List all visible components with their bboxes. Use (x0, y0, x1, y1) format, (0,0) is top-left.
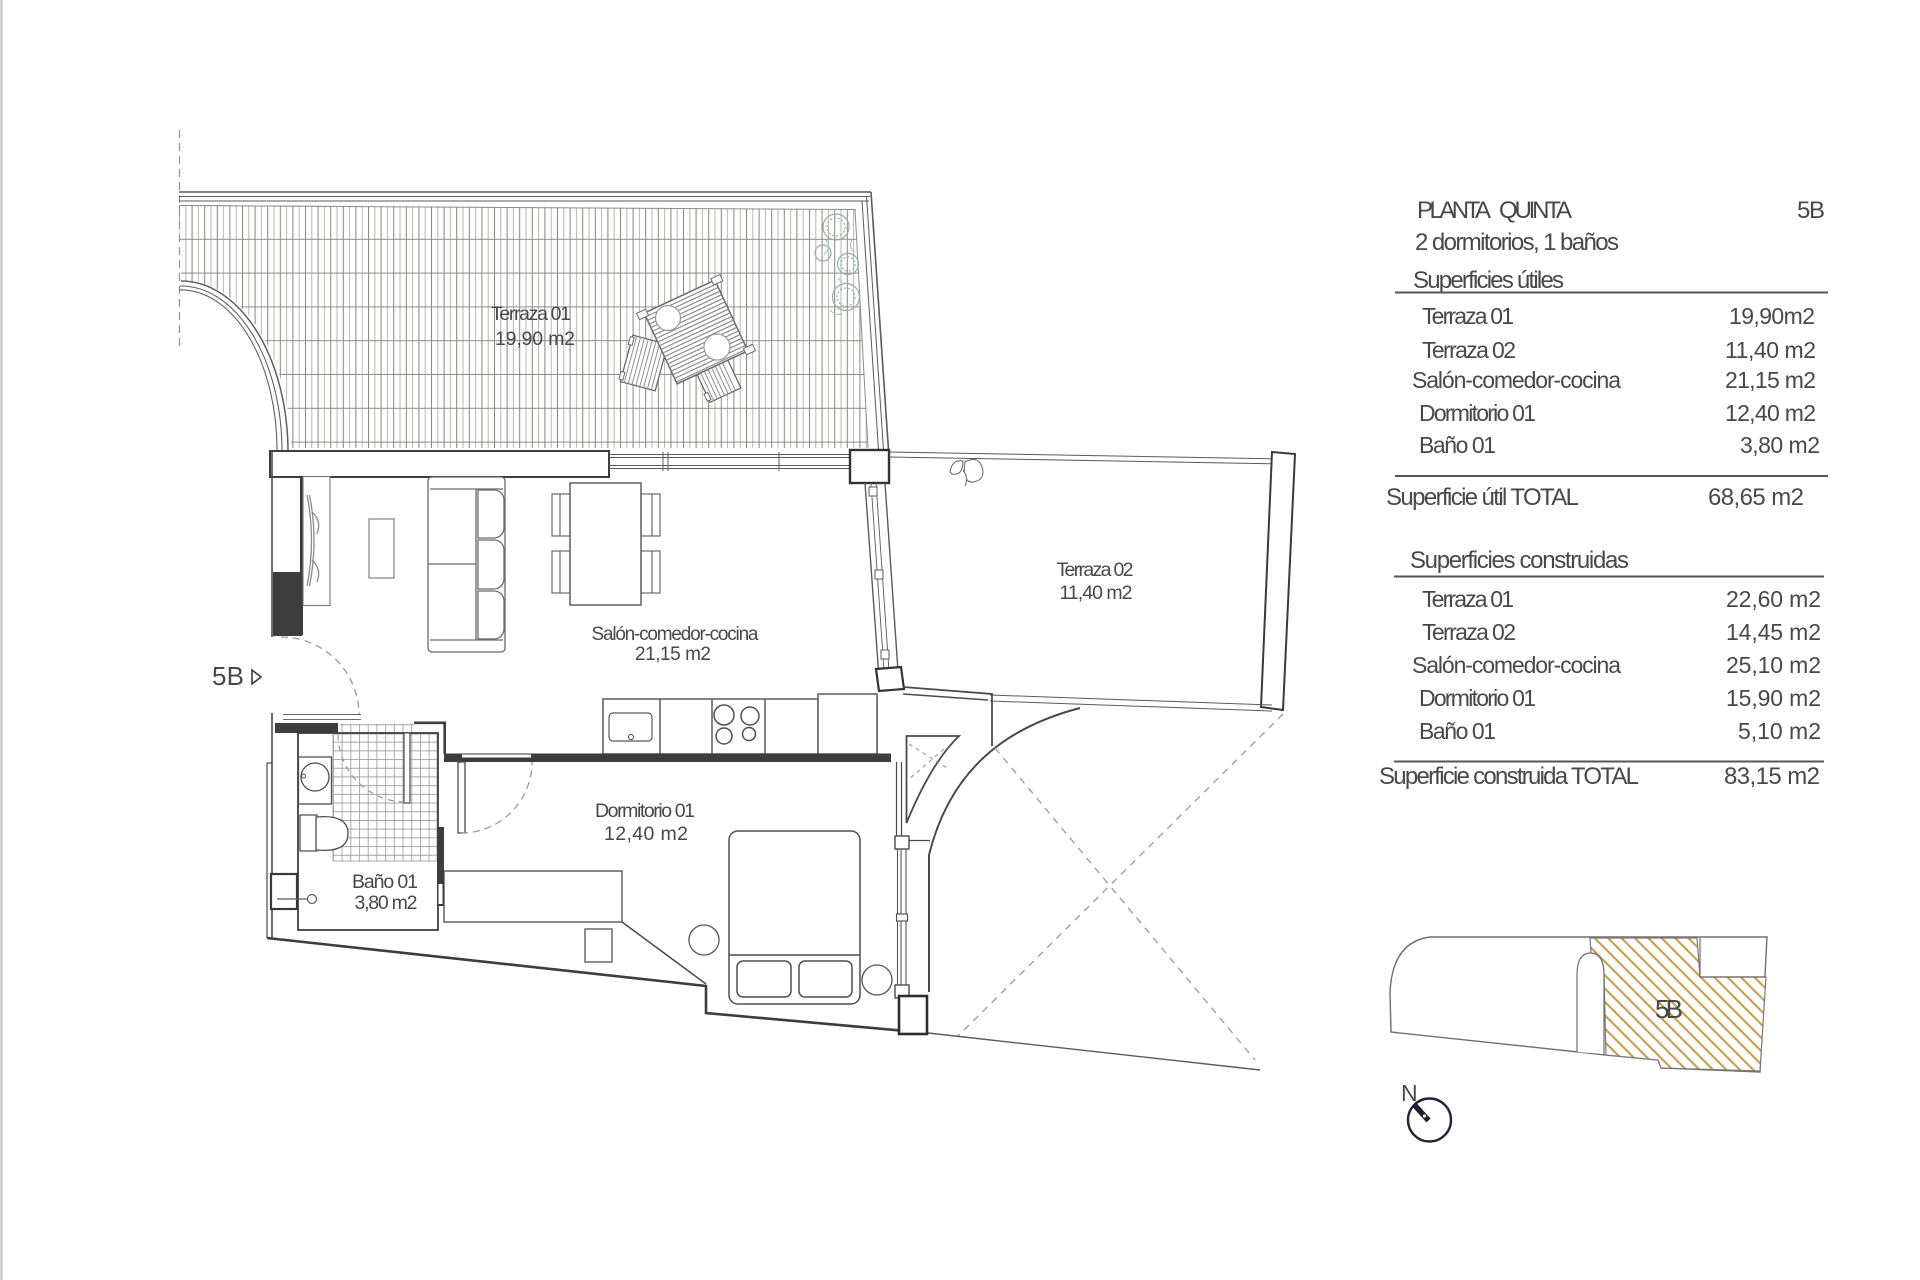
svg-text:Baño 01: Baño 01 (1419, 432, 1496, 458)
svg-text:19,90m2: 19,90m2 (1729, 303, 1815, 329)
svg-text:Dormitorio 01: Dormitorio 01 (595, 800, 695, 822)
svg-text:15,90 m2: 15,90 m2 (1726, 685, 1821, 711)
svg-text:PLANTA: PLANTA (1417, 197, 1491, 224)
svg-text:5B: 5B (1655, 994, 1683, 1024)
svg-text:Dormitorio 01: Dormitorio 01 (1419, 685, 1536, 711)
svg-text:Salón-comedor-cocina: Salón-comedor-cocina (592, 624, 759, 645)
svg-text:2 dormitorios, 1 baños: 2 dormitorios, 1 baños (1415, 229, 1619, 256)
svg-text:Terraza 01: Terraza 01 (1422, 303, 1514, 329)
svg-text:Baño 01: Baño 01 (352, 871, 418, 893)
svg-text:12,40 m2: 12,40 m2 (604, 823, 688, 845)
svg-text:Superficies útiles: Superficies útiles (1413, 267, 1564, 294)
svg-text:11,40 m2: 11,40 m2 (1060, 582, 1133, 604)
svg-text:83,15 m2: 83,15 m2 (1724, 763, 1820, 790)
svg-text:Terraza 02: Terraza 02 (1057, 559, 1134, 581)
svg-text:5,10 m2: 5,10 m2 (1738, 718, 1821, 744)
svg-text:68,65 m2: 68,65 m2 (1708, 484, 1804, 511)
svg-text:Salón-comedor-cocina: Salón-comedor-cocina (1412, 652, 1621, 678)
svg-text:Superficie construida TOTAL: Superficie construida TOTAL (1379, 763, 1639, 790)
svg-text:12,40 m2: 12,40 m2 (1725, 400, 1816, 426)
svg-text:11,40 m2: 11,40 m2 (1725, 337, 1816, 363)
svg-text:5B: 5B (212, 661, 244, 691)
svg-text:14,45 m2: 14,45 m2 (1726, 619, 1821, 645)
svg-text:Terraza 01: Terraza 01 (491, 303, 571, 325)
svg-text:5B: 5B (1797, 197, 1825, 224)
svg-text:Terraza 02: Terraza 02 (1422, 337, 1516, 363)
svg-text:Superficies construidas: Superficies construidas (1410, 547, 1629, 574)
svg-text:22,60 m2: 22,60 m2 (1726, 586, 1821, 612)
svg-text:Dormitorio 01: Dormitorio 01 (1419, 400, 1536, 426)
svg-text:21,15 m2: 21,15 m2 (1725, 367, 1816, 393)
svg-text:3,80 m2: 3,80 m2 (1740, 432, 1820, 458)
svg-text:QUINTA: QUINTA (1499, 197, 1572, 224)
svg-text:Baño 01: Baño 01 (1419, 718, 1496, 744)
svg-text:Superficie útil TOTAL: Superficie útil TOTAL (1386, 484, 1579, 511)
svg-text:Terraza 02: Terraza 02 (1422, 619, 1516, 645)
svg-text:Salón-comedor-cocina: Salón-comedor-cocina (1412, 367, 1621, 393)
svg-text:21,15 m2: 21,15 m2 (635, 644, 711, 665)
svg-text:25,10 m2: 25,10 m2 (1726, 652, 1821, 678)
svg-text:3,80 m2: 3,80 m2 (355, 892, 418, 914)
svg-text:19,90 m2: 19,90 m2 (495, 328, 575, 350)
svg-text:Terraza 01: Terraza 01 (1422, 586, 1514, 612)
svg-text:N: N (1401, 1080, 1418, 1106)
